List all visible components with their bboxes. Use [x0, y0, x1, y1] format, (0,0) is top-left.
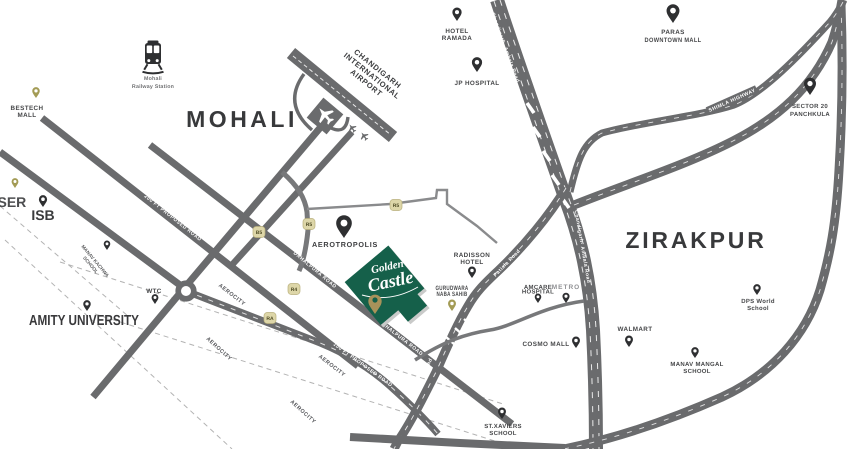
- svg-text:MOHALI: MOHALI: [186, 106, 298, 132]
- svg-text:ZIRAKPUR: ZIRAKPUR: [625, 227, 766, 253]
- svg-text:R5: R5: [393, 203, 400, 209]
- svg-text:COSMO MALL: COSMO MALL: [522, 341, 569, 348]
- svg-text:METRO: METRO: [552, 284, 580, 291]
- svg-text:SECTOR 20: SECTOR 20: [792, 103, 828, 110]
- svg-text:AEROTROPOLIS: AEROTROPOLIS: [312, 240, 378, 249]
- svg-text:B5: B5: [256, 230, 263, 236]
- svg-text:BESTECH: BESTECH: [11, 105, 44, 112]
- svg-text:R5: R5: [306, 222, 313, 228]
- svg-text:PARAS: PARAS: [661, 29, 685, 36]
- svg-text:Railway Station: Railway Station: [132, 84, 174, 90]
- svg-text:ST.XAVIERS: ST.XAVIERS: [484, 423, 522, 430]
- svg-text:AMITY UNIVERSITY: AMITY UNIVERSITY: [29, 313, 139, 329]
- svg-text:HOTEL: HOTEL: [460, 259, 483, 266]
- svg-text:RAMADA: RAMADA: [442, 35, 472, 42]
- svg-text:IISER: IISER: [0, 194, 26, 210]
- svg-text:RA: RA: [266, 316, 274, 322]
- svg-text:Mohali: Mohali: [144, 76, 162, 82]
- svg-text:NABA SAHIB: NABA SAHIB: [437, 291, 468, 298]
- svg-text:PANCHKULA: PANCHKULA: [790, 111, 830, 118]
- svg-text:JP HOSPITAL: JP HOSPITAL: [454, 80, 499, 87]
- svg-text:MANAV MANGAL: MANAV MANGAL: [670, 361, 723, 368]
- svg-text:ISB: ISB: [31, 207, 54, 223]
- svg-text:SCHOOL: SCHOOL: [489, 430, 517, 437]
- svg-text:DPS World: DPS World: [741, 298, 775, 305]
- svg-text:WTC: WTC: [146, 288, 162, 295]
- svg-text:School: School: [747, 305, 769, 312]
- svg-text:SCHOOL: SCHOOL: [683, 368, 711, 375]
- svg-text:WALMART: WALMART: [618, 326, 653, 333]
- svg-text:HOTEL: HOTEL: [445, 28, 468, 35]
- svg-text:DOWNTOWN MALL: DOWNTOWN MALL: [645, 37, 702, 44]
- svg-text:R4: R4: [291, 287, 298, 293]
- svg-text:RADISSON: RADISSON: [454, 252, 490, 259]
- svg-text:MALL: MALL: [17, 112, 36, 119]
